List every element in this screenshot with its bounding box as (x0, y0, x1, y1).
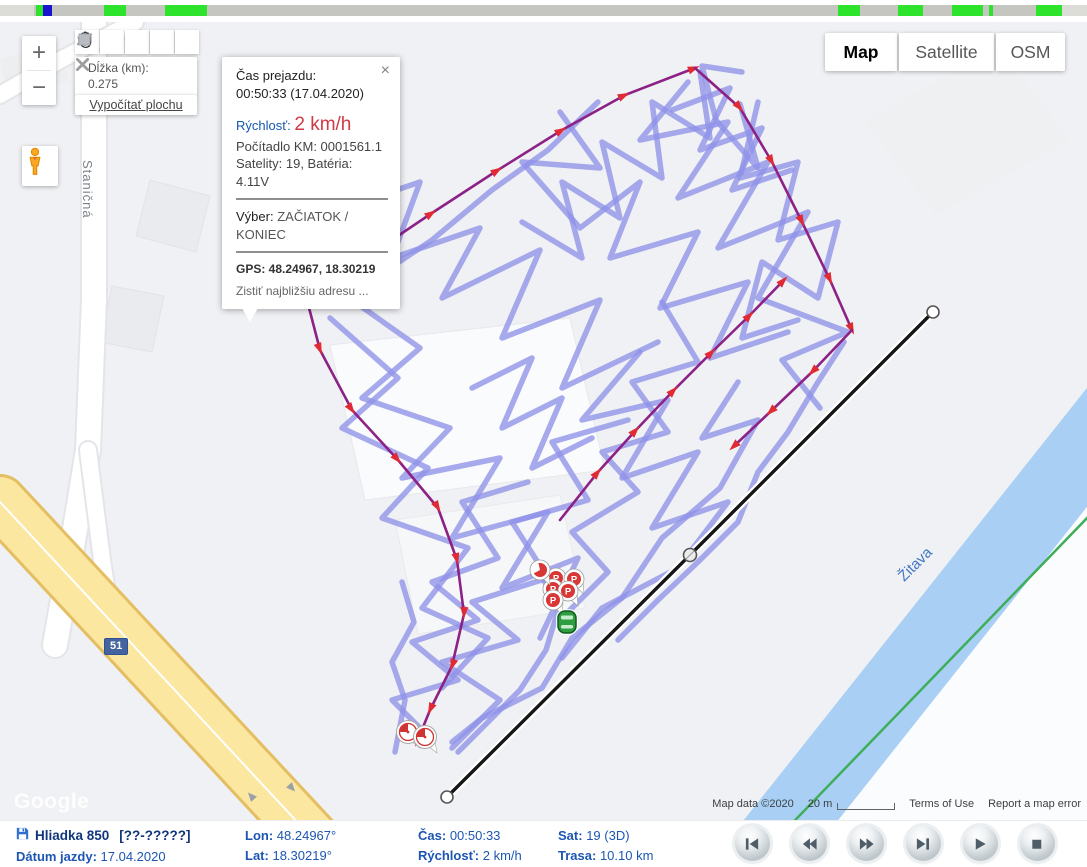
rectangle-tool-button[interactable] (175, 30, 199, 54)
zoom-in-button[interactable]: + (22, 36, 56, 70)
scale-bar (837, 803, 895, 810)
sat-value: 19 (3D) (586, 828, 629, 843)
lon-label: Lon: (245, 828, 273, 843)
zoom-out-button[interactable]: − (22, 71, 56, 105)
skip-start-icon (744, 836, 761, 852)
timeline-segment-green (838, 5, 860, 16)
dist-label: Trasa: (558, 848, 596, 863)
skip-end-button[interactable] (906, 826, 941, 861)
pegman-button[interactable] (22, 146, 58, 186)
popup-address-link[interactable]: Zistiť najbližšiu adresu ... (236, 283, 388, 299)
popup-select-label: Výber: (236, 209, 274, 224)
length-label: Dĺžka (km): (88, 61, 149, 75)
timeline-segment-light (1062, 5, 1087, 16)
timeline-segment-green (952, 5, 983, 16)
playback-controls (735, 826, 1055, 861)
speed-value: 2 km/h (483, 848, 522, 863)
speed-label: Rýchlosť: (418, 848, 479, 863)
fast-forward-icon (858, 836, 875, 852)
zoom-control: + − (22, 36, 56, 105)
time-label: Čas: (418, 828, 446, 843)
play-button[interactable] (963, 826, 998, 861)
date-value: 17.04.2020 (101, 849, 166, 864)
lon-value: 48.24967° (277, 828, 336, 843)
track-point-info-popup: × Čas prejazdu: 00:50:33 (17.04.2020) Rý… (222, 57, 400, 309)
measurement-box: Dĺžka (km): 0.275 (75, 57, 197, 96)
draw-tools (75, 30, 199, 54)
popup-gps: GPS: 48.24967, 18.30219 (236, 261, 388, 277)
route-shield-51: 51 (104, 638, 128, 655)
stop-button[interactable] (1020, 826, 1055, 861)
vehicle-plate: [??-?????] (119, 826, 190, 847)
vehicle-car-marker[interactable] (556, 609, 578, 635)
map-building (330, 318, 605, 500)
scale-control: 20 m (808, 798, 895, 810)
vehicle-name: Hliadka 850 (35, 826, 109, 847)
timeline-segment-green (989, 5, 993, 16)
map-building (865, 48, 1070, 215)
svg-text:P: P (565, 586, 572, 597)
fast-forward-button[interactable] (849, 826, 884, 861)
layer-button-map[interactable]: Map (825, 33, 897, 71)
rewind-icon (801, 836, 818, 852)
popup-odometer: Počítadlo KM: 0001561.1 (236, 138, 388, 156)
timeline-segment-blue (43, 5, 52, 16)
google-logo: Google (14, 790, 89, 814)
date-label: Dátum jazdy: (16, 849, 97, 864)
save-icon[interactable] (16, 826, 29, 847)
popup-time-label: Čas prejazdu: (236, 67, 388, 85)
skip-end-icon (915, 836, 932, 852)
measure-handle[interactable] (441, 791, 453, 803)
circle-tool-button[interactable] (125, 30, 149, 54)
sat-label: Sat: (558, 828, 583, 843)
dist-value: 10.10 km (600, 848, 653, 863)
street-label: Staničná (80, 160, 95, 219)
trip-timeline-bar[interactable] (0, 5, 1087, 16)
map-canvas[interactable]: PPPPP Staničná Žitava 51 + − Dĺžka (km):… (0, 22, 1087, 820)
popup-time-value: 00:50:33 (17.04.2020) (236, 85, 388, 103)
timeline-segment-green (104, 5, 126, 16)
polyline-tool-button[interactable] (100, 30, 124, 54)
stop-clock-marker[interactable] (414, 726, 438, 754)
svg-text:P: P (550, 595, 557, 606)
timeline-segment-green (165, 5, 207, 16)
timeline-segment-green (36, 5, 43, 16)
map-building (100, 286, 164, 352)
lat-label: Lat: (245, 848, 269, 863)
rewind-button[interactable] (792, 826, 827, 861)
length-value: 0.275 (88, 77, 118, 91)
scale-label: 20 m (808, 798, 832, 810)
terms-link[interactable]: Terms of Use (909, 798, 974, 810)
polygon-tool-button[interactable] (150, 30, 174, 54)
divider (236, 198, 388, 200)
lat-value: 18.30219° (272, 848, 331, 863)
skip-start-button[interactable] (735, 826, 770, 861)
status-bar: Hliadka 850 [??-?????] Dátum jazdy: 17.0… (0, 820, 1087, 865)
measure-handle[interactable] (927, 306, 939, 318)
compute-area-box: Vypočítať plochu (75, 95, 197, 115)
popup-speed-value: 2 km/h (294, 114, 351, 135)
popup-speed-label: Rýchlosť: (236, 118, 291, 133)
layer-button-satellite[interactable]: Satellite (899, 33, 994, 71)
gps-track (640, 82, 848, 408)
report-error-link[interactable]: Report a map error (988, 798, 1081, 810)
stop-icon (1029, 836, 1046, 852)
map-graphics: PPPPP (0, 22, 1087, 820)
map-data-text: Map data ©2020 (712, 798, 794, 810)
compute-area-link[interactable]: Vypočítať plochu (89, 98, 182, 112)
divider (236, 251, 388, 253)
timeline-segment-light (0, 5, 34, 16)
layer-button-osm[interactable]: OSM (996, 33, 1065, 71)
popup-satellites: Satelity: 19, Batéria: 4.11V (236, 155, 388, 190)
map-attribution: Map data ©2020 20 m Terms of Use Report … (712, 798, 1081, 810)
map-building (745, 368, 1087, 820)
map-building (136, 180, 210, 252)
timeline-segment-green (1036, 5, 1062, 16)
time-value: 00:50:33 (450, 828, 501, 843)
timeline-segment-green (898, 5, 923, 16)
close-icon[interactable]: × (381, 63, 390, 79)
play-icon (972, 836, 989, 852)
